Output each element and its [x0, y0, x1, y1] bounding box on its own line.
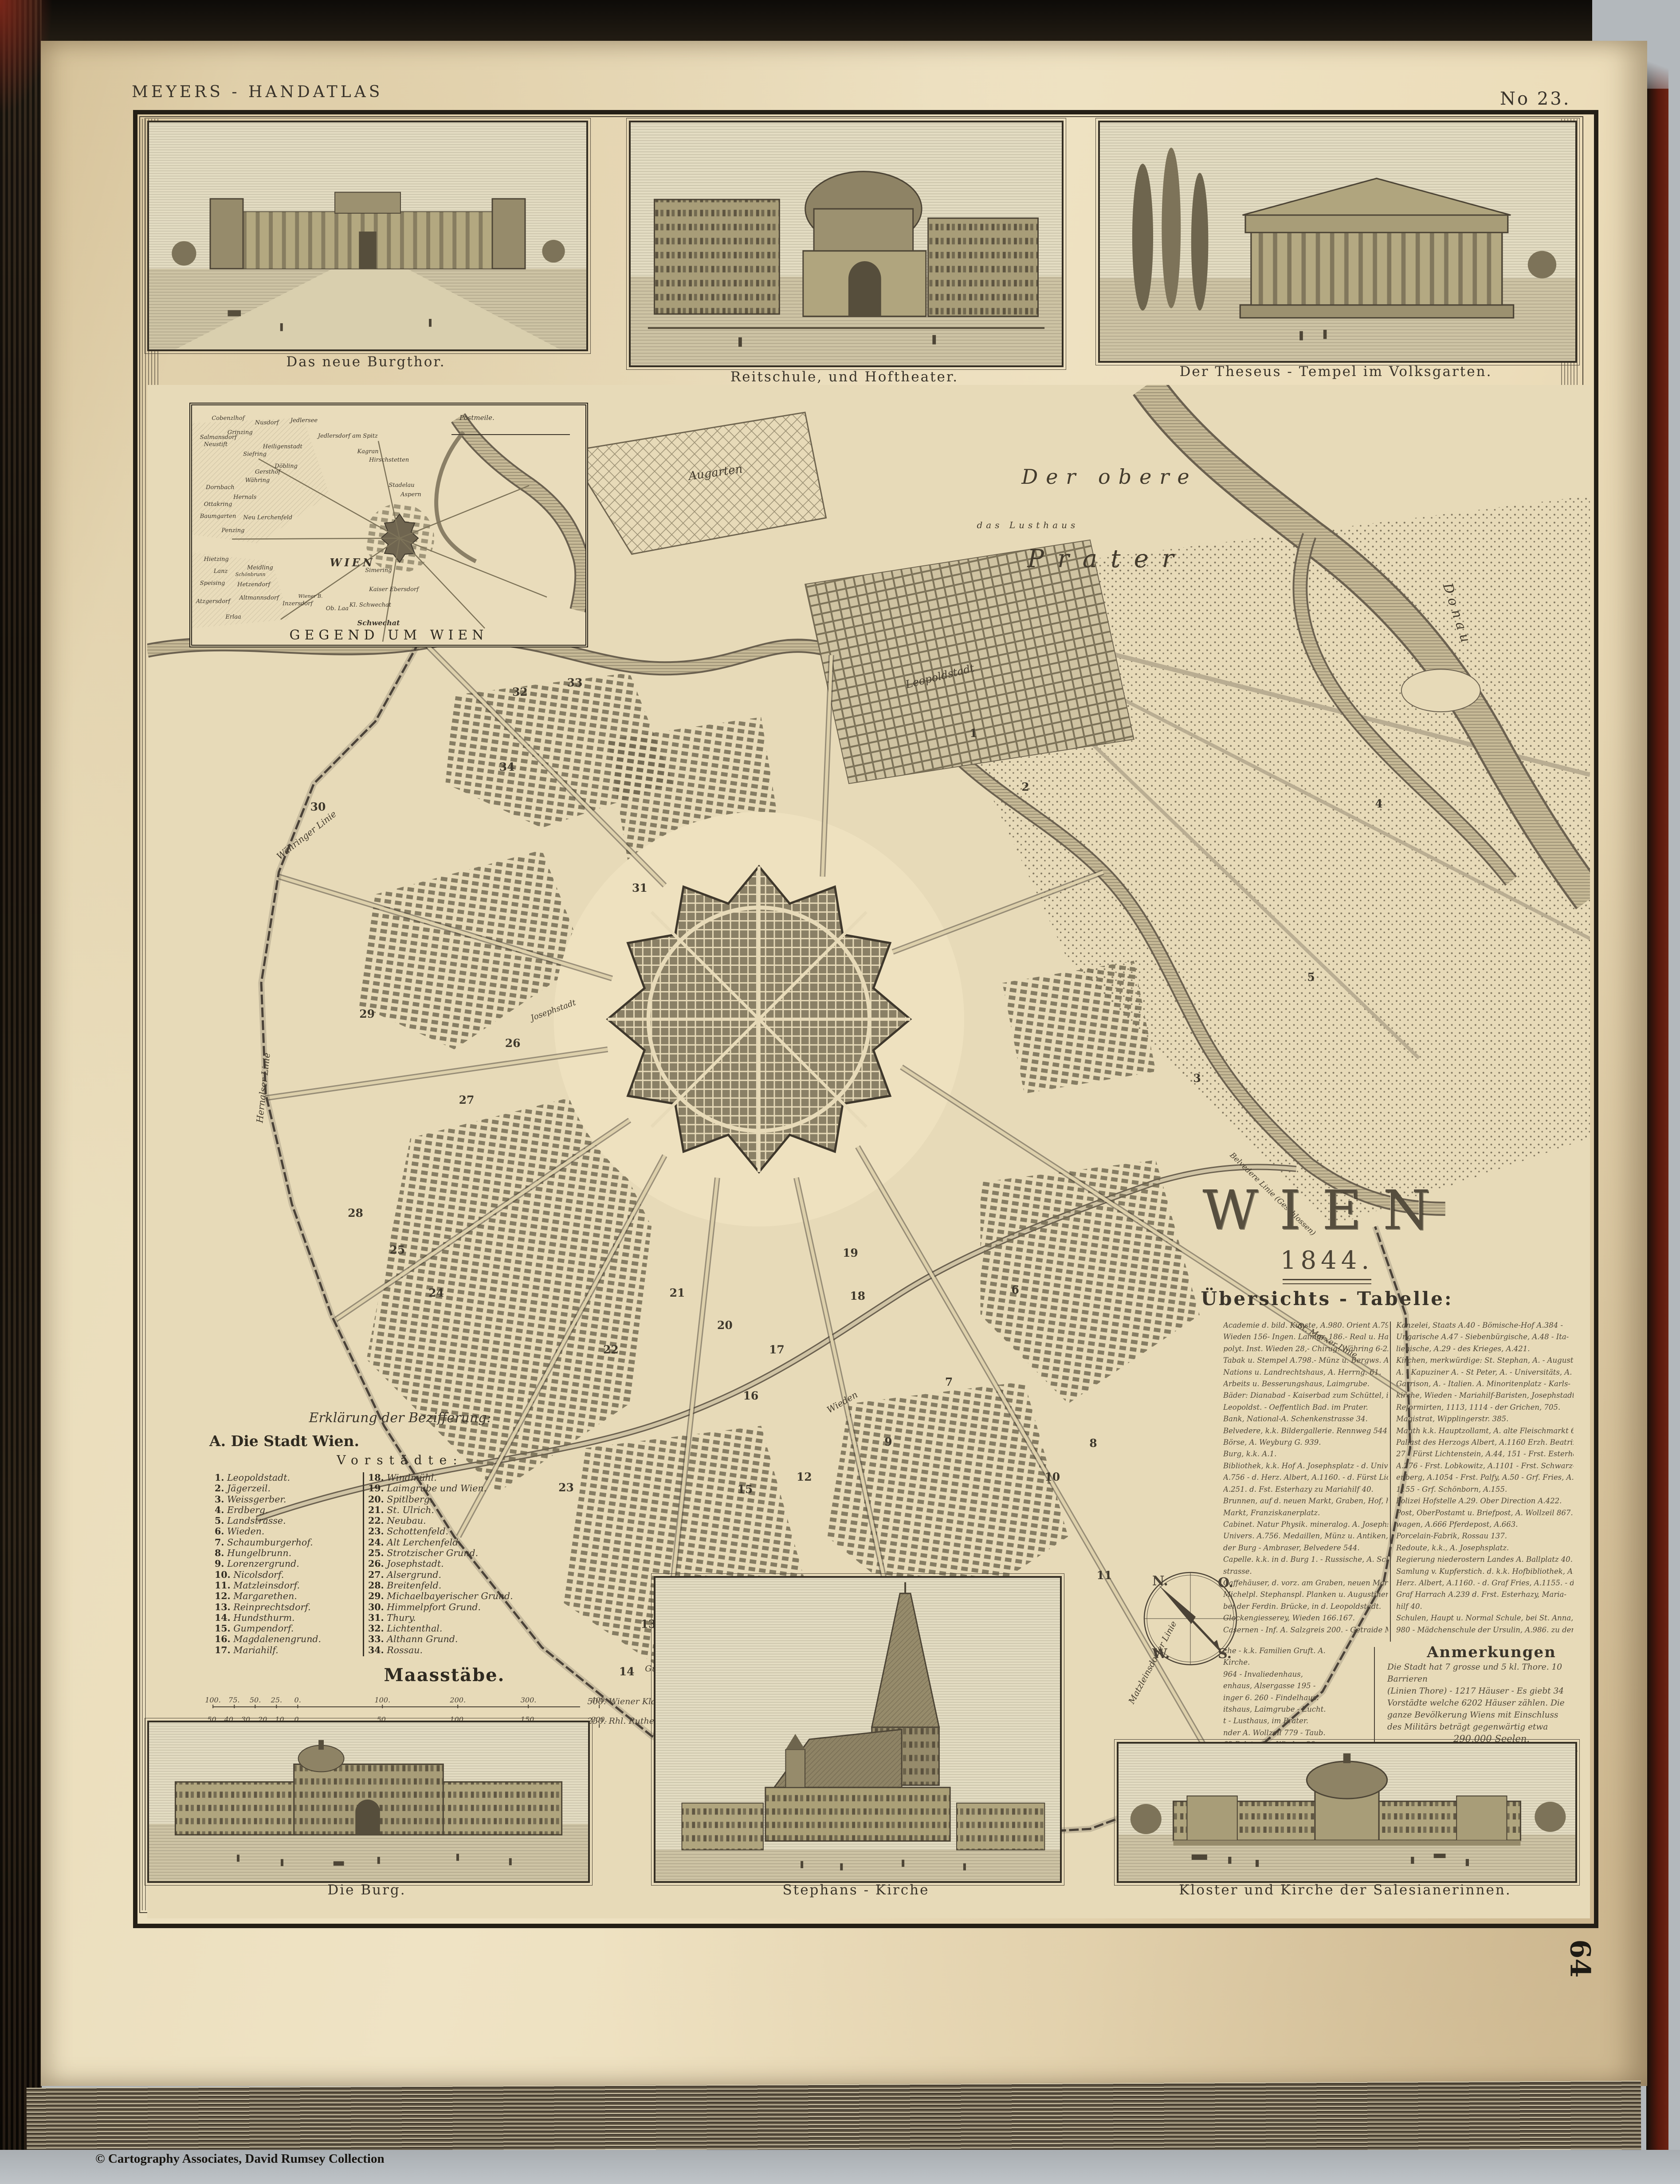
scale-tick: 50.: [250, 1696, 261, 1708]
legend-entry-name: Lorenzergrund.: [227, 1558, 299, 1569]
table-line: Kirchen, merkwürdige: St. Stephan, A. - …: [1396, 1355, 1574, 1366]
backdrop-right: [1668, 0, 1680, 2184]
engraving-salesianerinnen: [1117, 1742, 1577, 1883]
legend-entry-number: 25.: [368, 1548, 384, 1558]
legend-entry-number: 22.: [368, 1515, 384, 1526]
district-number: 25: [390, 1243, 405, 1256]
legend-entry-name: Reinprechtsdorf.: [233, 1602, 310, 1612]
legend-entry-name: Magdalenengrund.: [233, 1634, 321, 1644]
legend-entry-name: Lichtenthal.: [387, 1623, 442, 1634]
legend-entry-number: 29.: [368, 1591, 384, 1601]
table-line: Redoute, k.k., A. Josephsplatz.: [1396, 1542, 1574, 1554]
legend-entry: 8. Hungelbrunn.: [215, 1548, 321, 1558]
table-line: der Burg - Ambraser, Belvedere 544.: [1223, 1542, 1388, 1554]
legend-entry: 4. Erdberg.: [215, 1505, 321, 1515]
district-number: 4: [1375, 797, 1382, 810]
legend-entry: 26. Josephstadt.: [368, 1558, 513, 1569]
stephanskirche-art: [656, 1578, 1060, 1881]
table-line: 27 - Fürst Lichtenstein, A.44, 151 - Frs…: [1396, 1448, 1574, 1460]
district-number: 23: [558, 1481, 574, 1494]
table-line: Capelle. k.k. in d. Burg 1. - Russische,…: [1223, 1554, 1388, 1565]
table-line: hilf 40.: [1396, 1601, 1574, 1612]
scale-tick: 0.: [294, 1696, 301, 1708]
legend-entry-number: 26.: [368, 1558, 384, 1569]
scale-tick: 100.: [205, 1696, 221, 1708]
table-line: enhaus, Alsergasse 195 -: [1223, 1680, 1370, 1692]
anmerkungen-lines: Die Stadt hat 7 grosse und 5 kl. Thore. …: [1387, 1661, 1596, 1733]
inset-places-layer: CobenzlhofNusdorfJedlerseeGrinzingSalman…: [192, 405, 585, 645]
inset-place-label: Inzersdorf: [283, 600, 313, 607]
legend-entry: 1. Leopoldstadt.: [215, 1472, 321, 1483]
district-number: 33: [567, 676, 583, 689]
legend-entry: 5. Landstrasse.: [215, 1515, 321, 1526]
scale-tick: 75.: [228, 1696, 239, 1708]
legend-entry: 11. Matzleinsdorf.: [215, 1580, 321, 1591]
legend-column-1: 1. Leopoldstadt.2. Jägerzeil.3. Weissger…: [215, 1472, 321, 1655]
table-line: Kirche.: [1223, 1657, 1370, 1668]
table-line: Magistrat, Wipplingerstr. 385.: [1396, 1413, 1574, 1425]
engraving-burgthor: [147, 121, 588, 351]
legend-entry-name: Hundsthurm.: [233, 1612, 294, 1623]
table-line: 964 - Invaliedenhaus,: [1223, 1669, 1370, 1680]
anmerkungen-heading: Anmerkungen: [1387, 1643, 1596, 1661]
year-underline: [1283, 1279, 1371, 1284]
anmerkungen-line: (Linien Thore) - 1217 Häuser - Es giebt …: [1387, 1685, 1596, 1697]
table-line: Michelpl. Stephanspl. Planken u. Augusti…: [1223, 1589, 1388, 1600]
legend-entry: 3. Weissgerber.: [215, 1494, 321, 1505]
table-line: Garrison, A. - Italien. A. Minoritenplat…: [1396, 1378, 1574, 1390]
table-line: Burg, k.k. A.1.: [1223, 1448, 1388, 1460]
district-number: 27: [459, 1094, 475, 1106]
inset-place-label: Erlaa: [225, 614, 241, 620]
legend-entry-number: 6.: [215, 1526, 224, 1537]
district-number: 15: [737, 1483, 753, 1496]
table-line: itshaus, Laimgrube - Zucht.: [1223, 1704, 1370, 1715]
scale-tick: 200.: [450, 1696, 466, 1708]
compass-n: N.: [1152, 1573, 1168, 1589]
legend-entry-number: 21.: [368, 1505, 384, 1515]
district-number: 1: [970, 727, 977, 740]
inset-place-label: Aspern: [400, 491, 421, 498]
table-line: Caffehäuser, d. vorz. am Graben, neuen M…: [1223, 1577, 1388, 1589]
district-number: 17: [769, 1343, 785, 1356]
legend-entry-number: 16.: [215, 1634, 231, 1644]
inset-place-label: Kagran: [357, 448, 379, 455]
legend-vorstaedte: Vorstädte:: [254, 1453, 546, 1467]
legend-entry: 10. Nicolsdorf.: [215, 1569, 321, 1580]
district-number: 29: [359, 1008, 375, 1020]
scale-unit-label: 250. Rhl. Ruthen.: [587, 1716, 662, 1726]
compass-o: O.: [1218, 1575, 1233, 1591]
table-line: Nations u. Landrechtshaus, A. Herrng. 61…: [1223, 1367, 1388, 1378]
district-number: 30: [310, 800, 326, 813]
inset-map-gegend-um-wien: Postmeile. CobenzlhofNusdorfJedlerseeGri…: [189, 403, 588, 647]
table-line: 1155 - Grf. Schönborn, A.155.: [1396, 1484, 1574, 1495]
reitschule-art: [631, 122, 1062, 365]
legend-entry: 30. Himmelpfort Grund.: [368, 1602, 513, 1612]
legend-entry-name: St. Ulrich.: [387, 1505, 434, 1515]
table-line: Mauth k.k. Hauptzollamt, A. alte Fleisch…: [1396, 1425, 1574, 1437]
district-number: 11: [1096, 1569, 1112, 1582]
table-line: Leopoldst. - Oeffentlich Bad. im Prater.: [1223, 1402, 1388, 1413]
legend-entry-number: 33.: [368, 1634, 384, 1644]
legend-entry-name: Alt Lerchenfeld.: [387, 1537, 461, 1548]
table-divider-2: [1374, 1647, 1375, 1753]
legend-entry: 19. Laimgrube und Wien.: [368, 1483, 513, 1494]
district-number: 9: [884, 1435, 892, 1448]
legend-entry-number: 32.: [368, 1623, 384, 1634]
legend-entry-name: Jägerzeil.: [227, 1483, 271, 1494]
scalebar-wiener-klafter: 100.75.50.25.0. 100.200.300.400. 500. Wi…: [213, 1696, 684, 1711]
inset-place-label: Jedlersdorf am Spitz: [318, 433, 378, 439]
legend-entry-number: 31.: [368, 1612, 384, 1623]
district-number: 32: [512, 686, 528, 698]
legend-entry-number: 2.: [215, 1483, 224, 1494]
theseustempel-art: [1100, 122, 1575, 361]
caption-burgthor: Das neue Burgthor.: [147, 354, 585, 370]
district-number: 3: [1193, 1072, 1201, 1085]
anmerkungen-line: ganze Bevölkerung Wiens mit Einschluss: [1387, 1709, 1596, 1721]
legend-entry-name: Leopoldstadt.: [227, 1472, 290, 1483]
district-number: 26: [505, 1037, 521, 1050]
table-line: t - Lusthaus, im Prater.: [1223, 1715, 1370, 1727]
legend-entry-number: 10.: [215, 1569, 231, 1580]
inset-place-label: Schwechat: [357, 619, 400, 627]
legend-entry: 17. Mariahilf.: [215, 1645, 321, 1655]
salesianerinnen-art: [1119, 1744, 1575, 1881]
district-number: 28: [348, 1207, 363, 1219]
legend-divider: [363, 1472, 364, 1656]
inset-place-label: Ob. Laa: [326, 605, 349, 612]
legend-entry: 18. Windmühl.: [368, 1472, 513, 1483]
inset-place-label: Jedlersee: [290, 417, 318, 424]
inset-place-label: Atzgersdorf: [196, 598, 230, 605]
inset-place-label: Kl. Schwechat: [349, 602, 391, 608]
table-line: kirche, Wieden - Mariahilf-Baristen, Jos…: [1396, 1390, 1574, 1401]
table-line: Bank, National-A. Schenkenstrasse 34.: [1223, 1413, 1388, 1425]
table-line: Regierung niederostern Landes A. Ballpla…: [1396, 1554, 1574, 1565]
atlas-series-title: MEYERS - HANDATLAS: [132, 83, 383, 101]
table-line: A.756 - d. Herz. Albert, A.1160. - d. Fü…: [1223, 1472, 1388, 1483]
legend-entry-name: Thury.: [387, 1612, 416, 1623]
district-number: 22: [603, 1343, 619, 1356]
district-number: 6: [1012, 1283, 1019, 1296]
legend-entry: 9. Lorenzergrund.: [215, 1558, 321, 1569]
inset-place-label: Hetzendorf: [237, 581, 270, 588]
inset-place-label: Nusdorf: [255, 420, 279, 426]
legend-entry-number: 3.: [215, 1494, 224, 1505]
legend-entry-number: 7.: [215, 1537, 224, 1548]
district-number: 18: [850, 1290, 865, 1302]
inset-place-label: Cobenzlhof: [212, 415, 244, 422]
legend-entry: 6. Wieden.: [215, 1526, 321, 1537]
legend-entry: 23. Schottenfeld.: [368, 1526, 513, 1537]
table-column-right: Kanzelei, Staats A.40 - Bömische-Hof A.3…: [1396, 1320, 1574, 1636]
legend-entry-number: 1.: [215, 1472, 224, 1483]
district-number: 20: [717, 1319, 733, 1332]
table-line: A. - Kapuziner A. - St Peter, A. - Unive…: [1396, 1367, 1574, 1378]
legend-entry-name: Neubau.: [387, 1515, 426, 1526]
district-number: 8: [1089, 1437, 1097, 1450]
legend-entry-name: Laimgrube und Wien.: [387, 1483, 487, 1494]
inset-place-label: Heiligenstadt: [263, 443, 302, 450]
table-line: Graf Harrach A.239 d. Frst. Esterhazy, M…: [1396, 1589, 1574, 1600]
anmerkungen-line: des Militärs beträgt gegenwärtig etwa: [1387, 1721, 1596, 1733]
table-line: strasse.: [1223, 1566, 1388, 1577]
inset-place-label: Lanz: [214, 568, 228, 575]
legend-entry-number: 4.: [215, 1505, 224, 1515]
burgthor-art: [149, 122, 586, 349]
legend-entry-number: 20.: [368, 1494, 384, 1505]
inset-place-label: Kaiser Ebersdorf: [369, 586, 419, 593]
legend-stadt-wien: A. Die Stadt Wien.: [209, 1432, 359, 1450]
legend-heading: Erklärung der Bezifferung:: [254, 1410, 546, 1426]
legend-entry-name: Wieden.: [227, 1526, 264, 1537]
table-line: A.251. d. Fst. Esterhazy zu Mariahilf 40…: [1223, 1484, 1388, 1495]
legend-entry: 31. Thury.: [368, 1612, 513, 1623]
legend-entry: 33. Althann Grund.: [368, 1634, 513, 1644]
engraving-theseustempel: [1098, 121, 1577, 363]
district-number: 21: [670, 1286, 685, 1299]
table-line: Herz. Albert, A.1160. - d. Graf Fries, A…: [1396, 1577, 1574, 1589]
table-line: Börse, A. Weyburg G. 939.: [1223, 1437, 1388, 1448]
district-number: 7: [945, 1376, 953, 1388]
legend-entry-number: 15.: [215, 1623, 231, 1634]
inset-place-label: Speising: [200, 580, 225, 587]
engraving-stephanskirche: [654, 1576, 1062, 1883]
inset-place-label: Neustift: [204, 441, 228, 448]
engraving-die-burg: [147, 1721, 590, 1883]
inset-caption: GEGEND UM WIEN: [192, 627, 585, 643]
table-line: Univers. A.756. Medaillen, Münz u. Antik…: [1223, 1530, 1388, 1542]
district-number: 19: [843, 1247, 858, 1259]
anmerkungen-line: Die Stadt hat 7 grosse und 5 kl. Thore. …: [1387, 1661, 1596, 1685]
legend-entry: 14. Hundsthurm.: [215, 1612, 321, 1623]
legend-entry-name: Michaelbayerischer Grund.: [387, 1591, 513, 1601]
inset-place-label: Siefring: [243, 451, 267, 458]
inset-place-label: Stadelau: [389, 482, 415, 489]
table-line: Glockengiesserey, Wieden 166.167.: [1223, 1612, 1388, 1624]
map-title: WIEN: [1052, 1179, 1602, 1242]
table-line: Schulen, Haupt u. Normal Schule, bei St.…: [1396, 1612, 1574, 1624]
legend-entry-number: 5.: [215, 1515, 224, 1526]
table-line: polyt. Inst. Wieden 28,- Chirug. Währing…: [1223, 1343, 1388, 1355]
table-line: inger 6. 260 - Findelhaus.: [1223, 1692, 1370, 1704]
legend-entry-number: 9.: [215, 1558, 224, 1569]
legend-entry: 28. Breitenfeld.: [368, 1580, 513, 1591]
scale-tick: 100.: [375, 1696, 391, 1708]
anmerkungen-line: Vorstädte welche 6202 Häuser zählen. Die: [1387, 1697, 1596, 1709]
inset-place-label: Salmansdorf: [200, 434, 237, 441]
inset-place-label: Hietzing: [204, 556, 229, 563]
legend-entry-name: Mariahilf.: [233, 1645, 278, 1655]
scale-heading: Maasstäbe.: [298, 1665, 591, 1686]
caption-salesianerinnen: Kloster und Kirche der Salesianerinnen.: [1117, 1882, 1574, 1898]
legend-entry-number: 27.: [368, 1569, 384, 1580]
inset-place-label: Dornbach: [206, 484, 235, 491]
district-number: 16: [743, 1389, 758, 1402]
legend-entry: 27. Alsergrund.: [368, 1569, 513, 1580]
table-line: enberg, A.1054 - Frst. Palfy, A.50 - Grf…: [1396, 1472, 1574, 1483]
legend-entry-number: 12.: [215, 1591, 231, 1601]
map-year: 1844.: [1052, 1246, 1602, 1275]
legend-entry: 25. Strotzischer Grund.: [368, 1548, 513, 1558]
legend-entry-name: Althann Grund.: [387, 1634, 458, 1644]
caption-die-burg: Die Burg.: [147, 1882, 586, 1898]
legend-entry: 13. Reinprechtsdorf.: [215, 1602, 321, 1612]
table-line: Arbeits u. Besserungshaus, Laimgrube.: [1223, 1378, 1388, 1390]
engraving-reitschule: [629, 121, 1064, 367]
legend-entry-number: 28.: [368, 1580, 384, 1591]
table-divider: [1390, 1321, 1391, 1642]
table-line: Tabak u. Stempel A.798.- Münz u. Bergws.…: [1223, 1355, 1388, 1366]
table-line: Markt, Franziskanerplatz.: [1223, 1507, 1388, 1519]
district-number: 5: [1307, 971, 1315, 984]
inset-place-label: Simering: [365, 567, 392, 574]
page-number: 64: [1564, 1939, 1597, 1977]
book-photo: MEYERS - HANDATLAS No 23. Das neu: [0, 0, 1680, 2184]
atlas-page: MEYERS - HANDATLAS No 23. Das neu: [41, 41, 1647, 2086]
inset-place-label: Ottakring: [204, 501, 232, 508]
district-number: 2: [1021, 780, 1029, 793]
legend-entry: 24. Alt Lerchenfeld.: [368, 1537, 513, 1548]
legend-entry-name: Spitlberg.: [387, 1494, 432, 1505]
inset-place-label: Wiener B.: [298, 593, 322, 599]
legend-entry-number: 24.: [368, 1537, 384, 1548]
legend-entry-number: 30.: [368, 1602, 384, 1612]
legend-entry-number: 14.: [215, 1612, 231, 1623]
compass-rose: N. O. W. S.: [1137, 1565, 1244, 1672]
legend-entry-name: Gumpendorf.: [233, 1623, 294, 1634]
district-number: 12: [797, 1470, 812, 1483]
legend-entry: 22. Neubau.: [368, 1515, 513, 1526]
inset-place-label: Meidling: [247, 565, 273, 571]
scale-tick: 300.: [521, 1696, 537, 1708]
table-line: Belvedere, k.k. Bildergallerie. Rennweg …: [1223, 1425, 1388, 1437]
legend-entry-name: Hungelbrunn.: [227, 1548, 291, 1558]
inset-place-label: Hernals: [233, 494, 256, 501]
legend-entry: 29. Michaelbayerischer Grund.: [368, 1591, 513, 1601]
legend-entry-name: Windmühl.: [387, 1472, 437, 1483]
legend-entry-name: Margarethen.: [233, 1591, 297, 1601]
district-number: 34: [499, 761, 515, 773]
book-page-block: [27, 2081, 1641, 2159]
table-line: 980 - Mädchenschule der Ursulin, A.986. …: [1396, 1624, 1574, 1636]
legend-entry-number: 17.: [215, 1645, 231, 1655]
table-line: Academie d. bild. Künste, A.980. Orient …: [1223, 1320, 1388, 1331]
legend-entry-name: Strotzischer Grund.: [387, 1548, 478, 1558]
legend-entry-name: Schottenfeld.: [387, 1526, 448, 1537]
table-line: Reformirten, 1113, 1114 - der Grichen, 7…: [1396, 1402, 1574, 1413]
table-line: Bäder: Dianabad - Kaiserbad zum Schüttel…: [1223, 1390, 1388, 1401]
inset-place-label: Baumgarten: [200, 513, 236, 520]
burg-art: [149, 1722, 588, 1881]
table-line: Polizei Hofstelle A.29. Ober Direction A…: [1396, 1495, 1574, 1507]
legend-entry-name: Josephstadt.: [387, 1558, 444, 1569]
compass-w: W.: [1152, 1646, 1170, 1662]
table-line: Bibliothek, k.k. Hof A. Josephsplatz - d…: [1223, 1460, 1388, 1472]
table-line: Casernen - Inf. A. Salzgreis 200. - Getr…: [1223, 1624, 1388, 1636]
district-number: 24: [428, 1286, 444, 1299]
collection-copyright: © Cartography Associates, David Rumsey C…: [95, 2152, 385, 2166]
legend-entry-name: Breitenfeld.: [387, 1580, 441, 1591]
legend-entry-name: Landstrasse.: [227, 1515, 286, 1526]
legend-entry-name: Himmelpfort Grund.: [387, 1602, 481, 1612]
legend-entry: 16. Magdalenengrund.: [215, 1634, 321, 1644]
inset-place-label: Gersthof: [255, 469, 280, 475]
legend-entry-name: Matzleinsdorf.: [233, 1580, 300, 1591]
table-line: Samlung v. Kupferstich. d. k.k. Hofbibli…: [1396, 1566, 1574, 1577]
table-line: che - k.k. Familien Gruft. A.: [1223, 1645, 1370, 1657]
scale-tick: 25.: [271, 1696, 282, 1708]
caption-theseustempel: Der Theseus - Tempel im Volksgarten.: [1098, 364, 1574, 380]
table-line: Kanzelei, Staats A.40 - Bömische-Hof A.3…: [1396, 1320, 1574, 1331]
legend-entry: 12. Margarethen.: [215, 1591, 321, 1601]
legend-entry: 7. Schaumburgerhof.: [215, 1537, 321, 1548]
legend-entry-name: Erdberg.: [227, 1505, 268, 1515]
legend-entry-name: Nicolsdorf.: [233, 1569, 284, 1580]
district-number: 10: [1044, 1470, 1060, 1483]
book-cover-top-edge: [0, 0, 1646, 42]
table-line: Porcelain-Fabrik, Rossau 137.: [1396, 1530, 1574, 1542]
book-spine: [0, 0, 42, 2184]
table-line: wagen, A.666 Pferdepost, A.663.: [1396, 1519, 1574, 1530]
legend-entry-number: 18.: [368, 1472, 384, 1483]
caption-stephanskirche: Stephans - Kirche: [654, 1882, 1058, 1898]
inset-place-label: Währing: [245, 477, 270, 484]
legend-entry-number: 34.: [368, 1645, 384, 1655]
legend-entry: 15. Gumpendorf.: [215, 1623, 321, 1634]
table-line: Post, OberPostamt u. Briefpost, A. Wollz…: [1396, 1507, 1574, 1519]
legend-entry: 20. Spitlberg.: [368, 1494, 513, 1505]
table-line: Ungarische A.47 - Siebenbürgische, A.48 …: [1396, 1331, 1574, 1343]
table-line: Cabinet. Natur Physik. mineralog. A. Jos…: [1223, 1519, 1388, 1530]
legend-entry-number: 13.: [215, 1602, 231, 1612]
inset-place-label: Neu Lerchenfeld: [243, 514, 292, 521]
table-line: Pallast des Herzogs Albert, A.1160 Erzh.…: [1396, 1437, 1574, 1448]
legend-entry: 2. Jägerzeil.: [215, 1483, 321, 1494]
inset-place-label: Altmannsdorf: [239, 595, 279, 601]
legend-entry-number: 19.: [368, 1483, 384, 1494]
inset-place-label: Penzing: [222, 527, 245, 534]
inset-place-label: Hirschstetten: [369, 457, 409, 463]
legend-entry-number: 11.: [215, 1580, 231, 1591]
table-column-left: Academie d. bild. Künste, A.980. Orient …: [1223, 1320, 1388, 1636]
table-line: bei der Ferdin. Brücke, in d. Leopoldsta…: [1223, 1601, 1388, 1612]
table-line: A.276 - Frst. Lobkowitz, A.1101 - Frst. …: [1396, 1460, 1574, 1472]
plate-number: No 23.: [1500, 89, 1570, 109]
legend-entry-number: 23.: [368, 1526, 384, 1537]
caption-reitschule: Reitschule, und Hoftheater.: [629, 369, 1060, 385]
legend-entry-name: Alsergrund.: [387, 1569, 441, 1580]
legend-entry: 21. St. Ulrich.: [368, 1505, 513, 1515]
legend-entry-name: Rossau.: [387, 1645, 423, 1655]
inset-place-label: Schönbrunn: [236, 572, 266, 577]
table-line: Brunnen, auf d. neuen Markt, Graben, Hof…: [1223, 1495, 1388, 1507]
book-cover-right-edge: [1646, 0, 1668, 2184]
legend-entry-number: 8.: [215, 1548, 224, 1558]
table-heading: Übersichts - Tabelle:: [1052, 1288, 1602, 1310]
legend-entry-name: Schaumburgerhof.: [227, 1537, 313, 1548]
table-line: nder A. Wollzeil 779 - Taub.: [1223, 1727, 1370, 1739]
legend-entry-name: Weissgerber.: [227, 1494, 287, 1505]
legend-entry: 34. Rossau.: [368, 1645, 513, 1655]
legend-column-2: 18. Windmühl.19. Laimgrube und Wien.20. …: [368, 1472, 513, 1655]
compass-s: S.: [1218, 1646, 1232, 1662]
district-number: 31: [632, 882, 648, 894]
district-number: 14: [619, 1665, 635, 1678]
table-line: lienische, A.29 - des Krieges, A.421.: [1396, 1343, 1574, 1355]
